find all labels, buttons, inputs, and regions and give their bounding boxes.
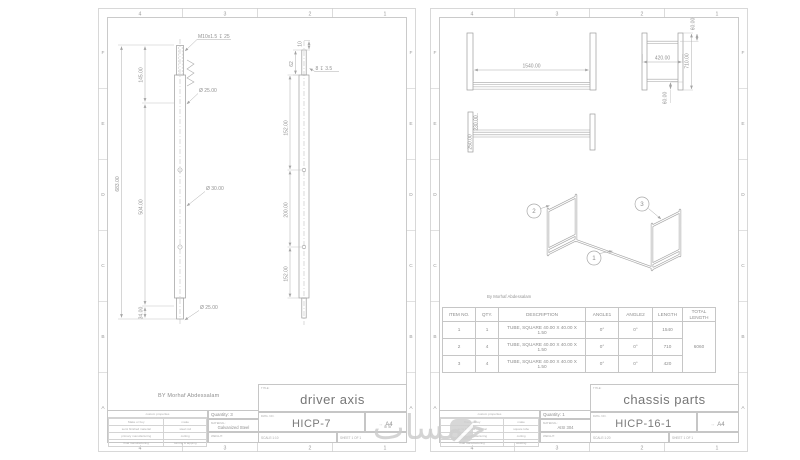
bom-header-row: ITEM NO. QTY. DESCRIPTION ANGLE1 ANGLE2 … xyxy=(443,308,716,322)
dim-overall: 683.00 xyxy=(115,176,121,192)
custom-properties-grid: custom properties Make or buymake semi f… xyxy=(107,410,208,443)
dwg-no-cell: DWG. NO. HICP-16-1 xyxy=(590,412,697,432)
bom-row: 3 4 TUBE, SQUARE 40.00 X 40.00 X 1.50 0°… xyxy=(443,356,716,373)
svg-text:C: C xyxy=(409,263,413,269)
hole-callout: 8 ↧ 3.5 xyxy=(316,66,333,72)
svg-text:C: C xyxy=(101,263,105,269)
weight-cell: WEIGHT: xyxy=(208,432,259,443)
svg-text:2: 2 xyxy=(641,446,644,452)
svg-text:3: 3 xyxy=(224,12,227,18)
quantity-cell: Quantity: 3 xyxy=(208,410,259,419)
svg-text:D: D xyxy=(741,192,745,198)
frame-side-view: 420.00 710.00 60.00 60.00 xyxy=(642,18,699,105)
svg-text:4: 4 xyxy=(471,12,474,18)
svg-text:4: 4 xyxy=(139,12,142,18)
scale-cell: SCALE:1:20 xyxy=(590,432,669,443)
dim-seg-top: 145.00 xyxy=(139,67,145,83)
material-cell: MATERIAL: Galvanized Steel xyxy=(208,419,259,432)
drawing-workspace: F E D C B A F E D C B A 4 3 2 1 4 3 2 1 xyxy=(0,0,800,460)
dim-side-top: 10 xyxy=(298,41,304,47)
svg-text:F: F xyxy=(102,50,105,56)
bom-total-length: 6060 xyxy=(683,322,716,373)
sheet-driver-axis: F E D C B A F E D C B A 4 3 2 1 4 3 2 1 xyxy=(98,8,416,452)
svg-text:1: 1 xyxy=(716,446,719,452)
svg-text:1: 1 xyxy=(716,12,719,18)
thread-coil-symbol xyxy=(187,60,194,86)
frame-front-view: 1540.00 xyxy=(467,33,596,90)
svg-text:3: 3 xyxy=(224,446,227,452)
svg-text:3: 3 xyxy=(556,12,559,18)
sheet-size-cell: ◦◦A4 xyxy=(697,412,739,432)
svg-text:E: E xyxy=(409,121,412,127)
weight-cell: WEIGHT: xyxy=(540,432,591,443)
svg-text:E: E xyxy=(433,121,436,127)
shaft-side-dimensions: 62 10 8 ↧ 3.5 152.00 200.00 152.00 xyxy=(284,41,340,299)
frame-bottom-view: 230.00 250.00 xyxy=(468,112,596,152)
dim-side-top: 60.00 xyxy=(691,18,697,31)
shaft-front-dimensions: 683.00 145.00 504.00 34.00 M10x1.5 ↧ 25 … xyxy=(115,34,231,320)
svg-text:E: E xyxy=(101,121,104,127)
dim-side-height: 710.00 xyxy=(685,53,691,69)
dia-mid-callout: Ø 30.00 xyxy=(206,186,224,192)
dim-side-stub: 62 xyxy=(289,61,295,67)
dim-side-bottom: 60.00 xyxy=(663,92,669,105)
drawing-title: driver axis xyxy=(259,392,406,407)
drawing-title: chassis parts xyxy=(591,392,738,407)
svg-text:E: E xyxy=(741,121,744,127)
drawing-number: HICP-16-1 xyxy=(591,418,696,430)
bill-of-materials: ITEM NO. QTY. DESCRIPTION ANGLE1 ANGLE2 … xyxy=(442,307,715,373)
svg-text:2: 2 xyxy=(641,12,644,18)
svg-text:F: F xyxy=(410,50,413,56)
shaft-side-view xyxy=(299,41,309,325)
dim-chain-mid: 200.00 xyxy=(284,202,290,218)
svg-text:D: D xyxy=(433,192,437,198)
svg-text:1: 1 xyxy=(384,12,387,18)
svg-text:F: F xyxy=(742,50,745,56)
thread-callout: M10x1.5 ↧ 25 xyxy=(198,34,230,40)
svg-text:C: C xyxy=(741,263,745,269)
svg-text:D: D xyxy=(101,192,105,198)
watermark-logo-icon xyxy=(450,419,473,442)
svg-text:F: F xyxy=(434,50,437,56)
dim-bottom-b: 250.00 xyxy=(468,134,474,150)
dia-top-callout: Ø 25.00 xyxy=(199,88,217,94)
sheet-number-cell: SHEET 1 OF 1 xyxy=(669,432,739,443)
title-cell: TITLE: chassis parts xyxy=(590,384,739,412)
balloon-1-label: 1 xyxy=(592,255,596,262)
svg-text:B: B xyxy=(433,334,436,340)
dim-front-width: 1540.00 xyxy=(522,64,540,70)
svg-text:2: 2 xyxy=(309,446,312,452)
balloon-3-label: 3 xyxy=(640,201,644,208)
dim-seg-bottom: 34.00 xyxy=(139,307,145,320)
dim-bottom-a: 230.00 xyxy=(474,115,480,131)
bom-row: 1 1 TUBE, SQUARE 40.00 X 40.00 X 1.50 0°… xyxy=(443,322,716,339)
dim-chain-top: 152.00 xyxy=(284,120,290,136)
material-cell: MATERIAL: AISI 304 xyxy=(540,419,591,432)
quantity-cell: Quantity: 1 xyxy=(540,410,591,419)
svg-text:B: B xyxy=(409,334,412,340)
balloon-2-label: 2 xyxy=(532,208,536,215)
dia-bottom-callout: Ø 25.00 xyxy=(200,305,218,311)
svg-text:B: B xyxy=(101,334,104,340)
dim-side-width: 420.00 xyxy=(655,56,671,62)
svg-text:2: 2 xyxy=(309,12,312,18)
dim-seg-mid: 504.00 xyxy=(139,199,145,215)
third-angle-projection-icon: ◦◦ xyxy=(711,422,714,427)
svg-text:D: D xyxy=(409,192,413,198)
svg-text:A: A xyxy=(741,405,745,411)
sheet-chassis-parts: F E D C B A F E D C B A 4 3 2 1 4 3 2 1 xyxy=(430,8,748,452)
svg-text:A: A xyxy=(101,405,105,411)
bom-row: 2 4 TUBE, SQUARE 40.00 X 40.00 X 1.50 0°… xyxy=(443,339,716,356)
frame-isometric-view: 2 3 1 xyxy=(527,195,680,270)
author-note: By Morhaf Abdessalam xyxy=(487,294,531,299)
shaft-front-view xyxy=(175,39,195,325)
dim-chain-bottom: 152.00 xyxy=(284,266,290,282)
svg-text:B: B xyxy=(741,334,744,340)
svg-text:C: C xyxy=(433,263,437,269)
svg-text:3: 3 xyxy=(556,446,559,452)
